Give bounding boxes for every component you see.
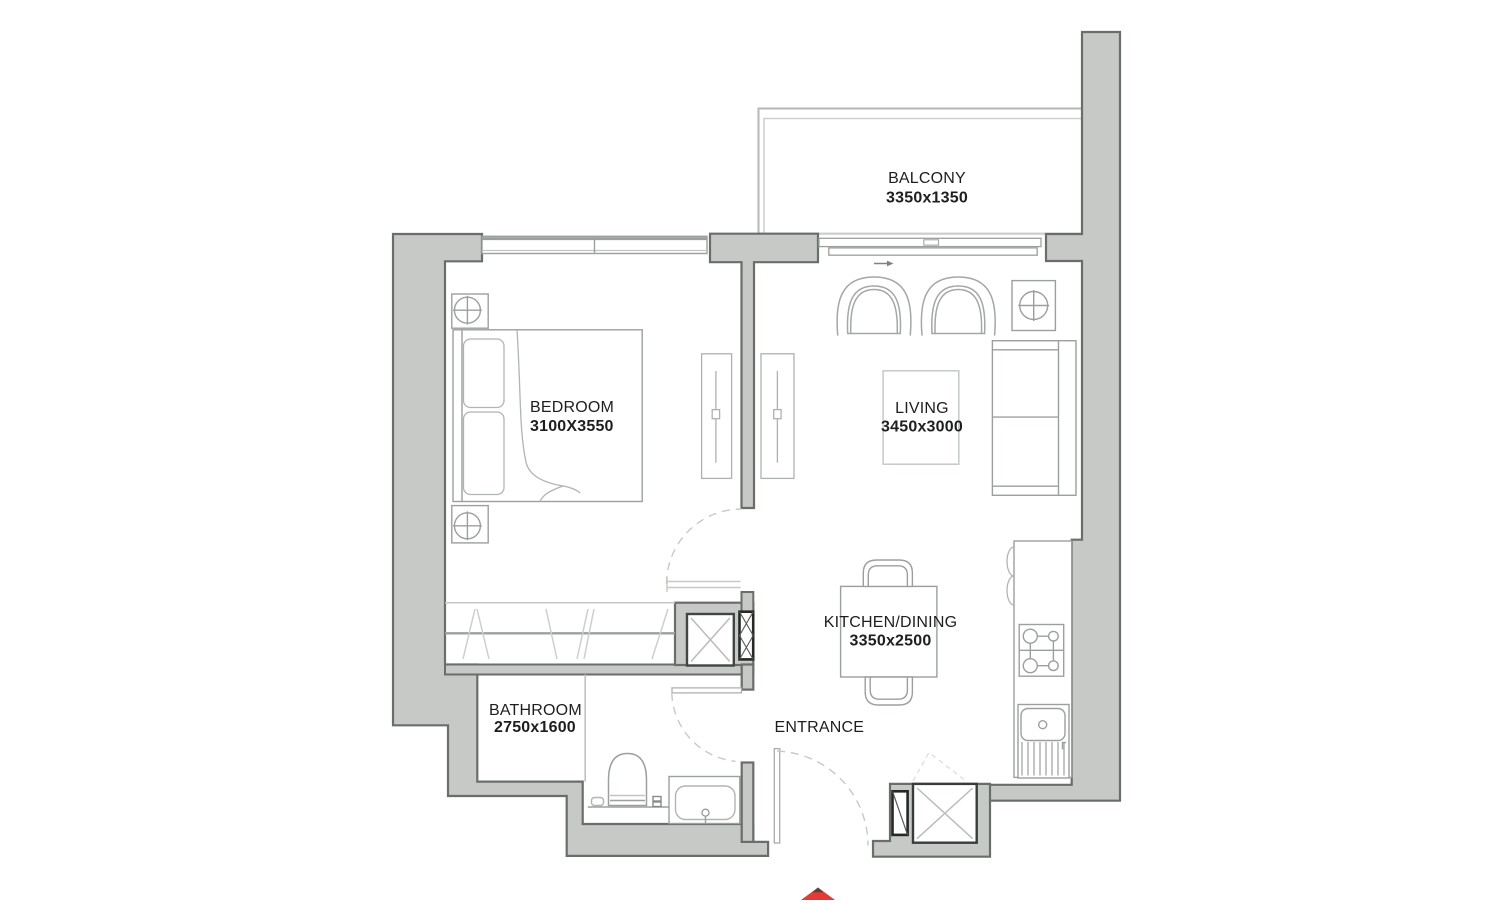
svg-text:KITCHEN/DINING: KITCHEN/DINING — [824, 614, 957, 631]
svg-text:3350x1350: 3350x1350 — [886, 190, 968, 207]
svg-text:3350x2500: 3350x2500 — [850, 633, 932, 650]
svg-text:3100X3550: 3100X3550 — [530, 418, 614, 435]
svg-text:BATHROOM: BATHROOM — [489, 702, 582, 719]
svg-text:2750x1600: 2750x1600 — [494, 719, 576, 736]
svg-text:BEDROOM: BEDROOM — [530, 399, 614, 416]
svg-text:ENTRANCE: ENTRANCE — [775, 719, 865, 736]
svg-text:3450x3000: 3450x3000 — [881, 419, 963, 436]
svg-text:BALCONY: BALCONY — [888, 170, 966, 187]
svg-text:LIVING: LIVING — [895, 400, 949, 417]
